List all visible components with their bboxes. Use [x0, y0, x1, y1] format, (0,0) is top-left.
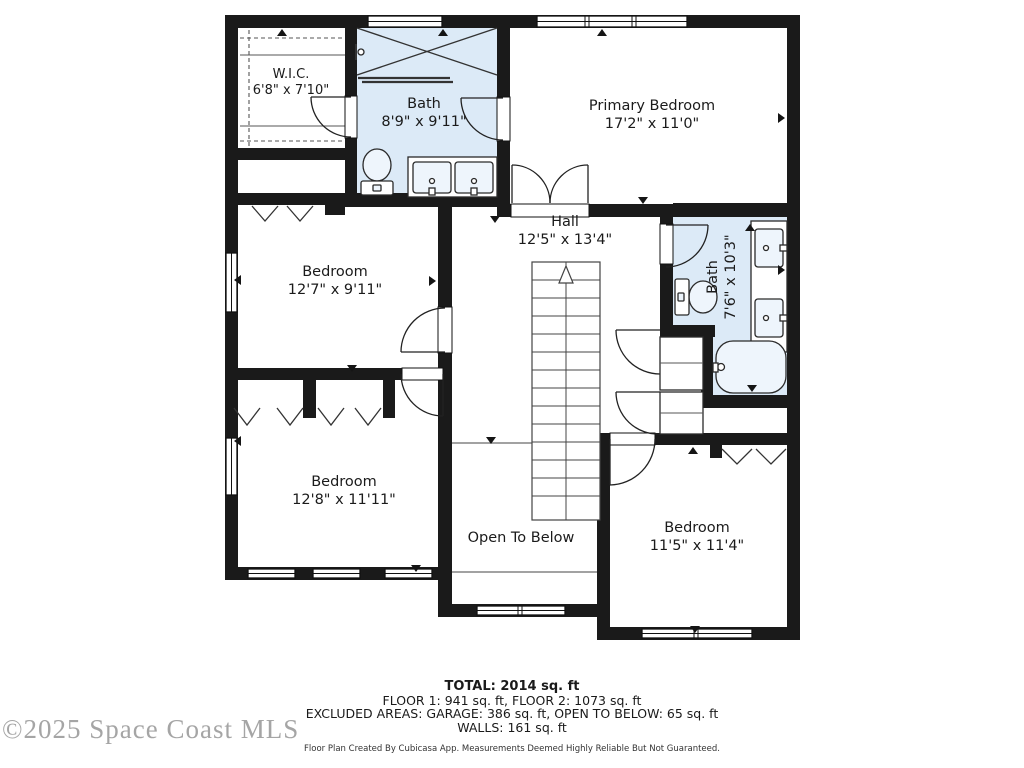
room-name: Bedroom — [288, 263, 382, 281]
floor-plan-page: W.I.C. 6'8" x 7'10" Bath 8'9" x 9'11" Pr… — [0, 0, 1024, 768]
room-name: Open To Below — [468, 529, 575, 547]
room-dims: 6'8" x 7'10" — [253, 83, 329, 99]
toilet-icon — [361, 149, 393, 195]
room-name: W.I.C. — [253, 67, 329, 83]
room-label-bedroom-southeast: Bedroom 11'5" x 11'4" — [650, 519, 744, 555]
closet-door — [616, 392, 660, 434]
staircase — [532, 262, 600, 520]
room-dims: 12'7" x 9'11" — [288, 281, 382, 299]
room-label-hall-bath: Bath 7'6" x 10'3" — [704, 234, 740, 319]
room-label-bedroom-southwest: Bedroom 12'8" x 11'11" — [292, 473, 396, 509]
room-dims: 8'9" x 9'11" — [381, 113, 466, 131]
room-dims: 11'5" x 11'4" — [650, 537, 744, 555]
summary-disclaimer: Floor Plan Created By Cubicasa App. Meas… — [0, 743, 1024, 757]
window — [226, 438, 237, 495]
room-label-wic: W.I.C. 6'8" x 7'10" — [253, 67, 329, 99]
sink-vanity-icon — [408, 157, 497, 197]
room-name: Bedroom — [292, 473, 396, 491]
window — [368, 16, 442, 27]
summary-floors: FLOOR 1: 941 sq. ft, FLOOR 2: 1073 sq. f… — [0, 694, 1024, 708]
window — [537, 16, 687, 27]
room-label-bedroom-west: Bedroom 12'7" x 9'11" — [288, 263, 382, 299]
room-dims: 7'6" x 10'3" — [722, 234, 740, 319]
room-label-hall: Hall 12'5" x 13'4" — [518, 213, 612, 249]
room-dims: 17'2" x 11'0" — [589, 115, 715, 133]
room-label-primary-bath: Bath 8'9" x 9'11" — [381, 95, 466, 131]
window — [642, 629, 752, 638]
mls-watermark: ©2025 Space Coast MLS — [2, 714, 299, 745]
window — [313, 569, 360, 578]
room-name: Bath — [381, 95, 466, 113]
door — [610, 439, 655, 485]
window — [385, 569, 432, 578]
room-name: Hall — [518, 213, 612, 231]
sink-vanity-icon — [751, 221, 787, 352]
room-dims: 12'8" x 11'11" — [292, 491, 396, 509]
window — [248, 569, 295, 578]
floor-plan-drawing — [0, 0, 1024, 768]
closet-shelves — [660, 337, 703, 434]
window — [226, 253, 237, 312]
summary-total: TOTAL: 2014 sq. ft — [0, 680, 1024, 694]
room-name: Bedroom — [650, 519, 744, 537]
room-name: Bath — [704, 234, 722, 319]
room-label-primary-bedroom: Primary Bedroom 17'2" x 11'0" — [589, 97, 715, 133]
window — [477, 606, 565, 615]
room-dims: 12'5" x 13'4" — [518, 231, 612, 249]
double-door — [512, 165, 588, 203]
room-label-open-to-below: Open To Below — [468, 529, 575, 547]
room-name: Primary Bedroom — [589, 97, 715, 115]
closet-door — [616, 330, 660, 374]
